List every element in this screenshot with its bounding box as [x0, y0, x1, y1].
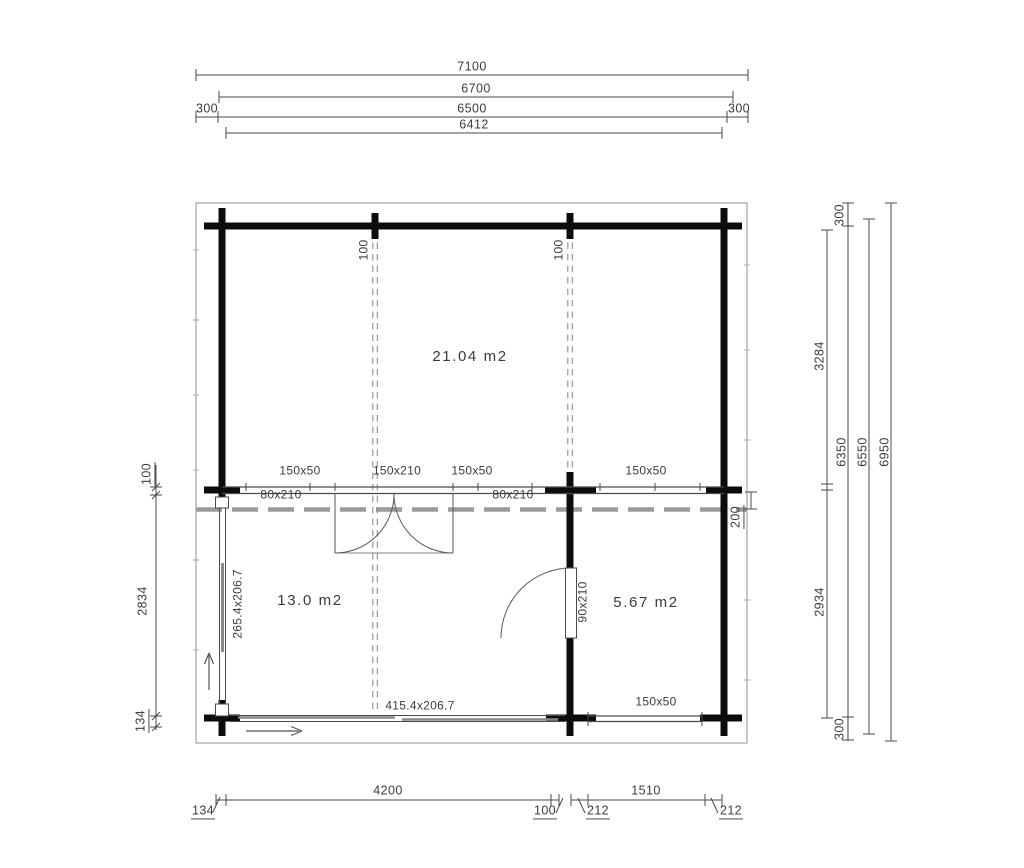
- dim-top-6412: 6412: [459, 118, 488, 131]
- door-swings: [335, 494, 577, 639]
- beam-label-left: 100: [358, 240, 371, 261]
- sliding-door-left: [216, 497, 229, 716]
- dim-bottom-212-b: 212: [719, 804, 743, 819]
- door-label-a: 80x210: [260, 489, 301, 502]
- slide-direction-up-arrow-icon: [205, 653, 214, 690]
- dim-bottom-134: 134: [191, 804, 215, 819]
- door-label-b: 80x210: [492, 489, 533, 502]
- double-door-label: 150x210: [373, 465, 421, 478]
- dim-right-2934: 2934: [813, 587, 826, 616]
- sliding-door-bottom: [230, 716, 565, 722]
- slider-left-label: 265.4x206.7: [232, 569, 245, 638]
- dim-top-300-left: 300: [196, 102, 218, 115]
- plan-drawing: [0, 0, 1024, 868]
- slider-bottom-label: 415.4x206.7: [385, 700, 454, 713]
- dim-right-6950: 6950: [878, 437, 891, 466]
- dim-top-7100: 7100: [457, 60, 486, 73]
- window-label-b: 150x50: [451, 465, 492, 478]
- dim-right-3284: 3284: [813, 341, 826, 370]
- room-label-storage: 5.67 m2: [613, 595, 678, 611]
- floor-plan-canvas: 7100 6700 300 6500 300 6412 134 4200 100…: [0, 0, 1024, 868]
- dim-bottom-212-a: 212: [586, 804, 610, 819]
- beam-label-right: 100: [553, 240, 566, 261]
- dim-left-100: 100: [140, 462, 155, 486]
- dim-right-300-bottom: 300: [833, 717, 848, 741]
- dim-left-2834: 2834: [136, 586, 149, 615]
- slide-direction-right-arrow-icon: [246, 727, 302, 736]
- dim-bottom-100: 100: [533, 804, 557, 819]
- dim-top-6700: 6700: [461, 82, 490, 95]
- dim-right-6550: 6550: [856, 437, 869, 466]
- window-label-a: 150x50: [279, 465, 320, 478]
- dim-right-300-top: 300: [833, 203, 848, 227]
- dim-top-300-right: 300: [728, 102, 750, 115]
- room-label-main: 21.04 m2: [432, 349, 507, 365]
- window-label-bottom: 150x50: [635, 696, 676, 709]
- window-label-c: 150x50: [625, 465, 666, 478]
- dimension-lines: [150, 69, 897, 813]
- dim-bottom-4200: 4200: [373, 784, 402, 797]
- dim-left-134: 134: [134, 709, 149, 733]
- dim-right-6350: 6350: [835, 437, 848, 466]
- room-label-terrace: 13.0 m2: [277, 593, 342, 609]
- dim-right-200: 200: [729, 505, 744, 529]
- dim-top-6500: 6500: [457, 102, 486, 115]
- dim-bottom-1510: 1510: [631, 784, 660, 797]
- storage-door-label: 90x210: [577, 581, 590, 622]
